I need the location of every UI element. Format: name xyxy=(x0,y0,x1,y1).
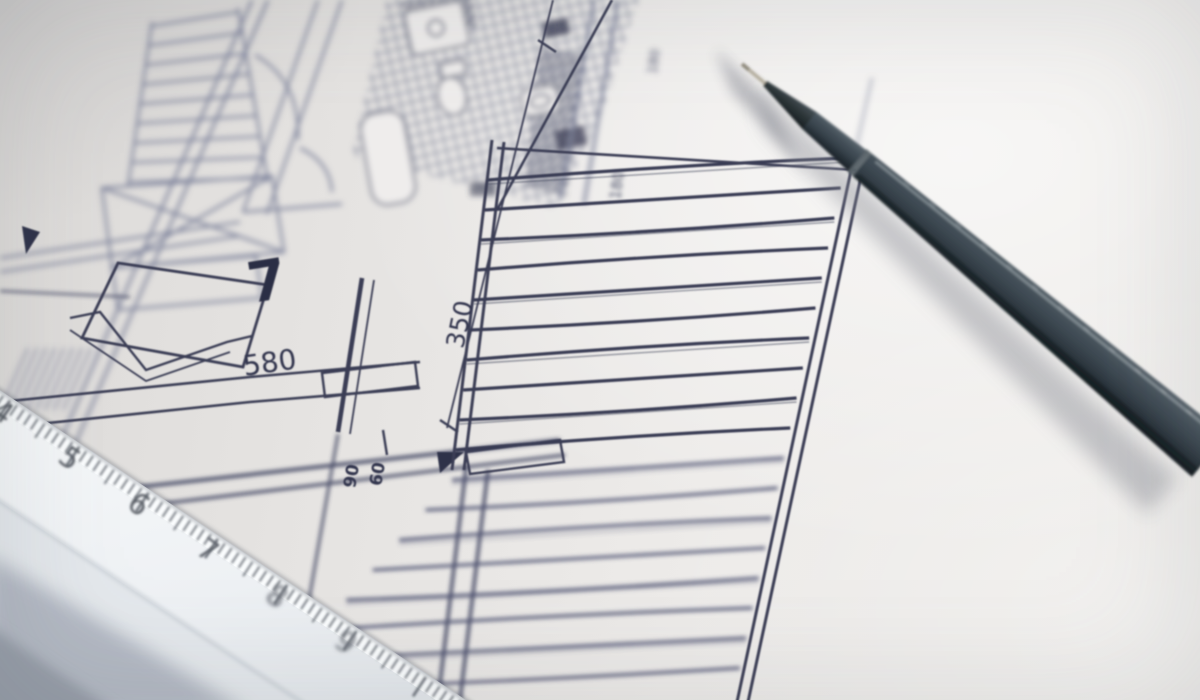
deck-hatching-upper xyxy=(456,158,847,450)
dim-180-top-label: 180 xyxy=(645,48,663,75)
blueprint-photo-scene: 180 180 xyxy=(0,0,1200,700)
dim-180-mid-label: 180 xyxy=(606,170,628,201)
dim-60-label: 60 xyxy=(366,461,390,488)
dim-90-label: 90 xyxy=(340,463,364,490)
dim-580-label: 580 xyxy=(241,343,299,383)
door-arc xyxy=(255,55,298,140)
door-arc xyxy=(300,148,332,192)
deck-right-edge xyxy=(737,166,862,700)
dim-350-label: 350 xyxy=(441,298,479,351)
ruler: 4 5 6 7 8 9 xyxy=(0,381,490,700)
bed xyxy=(82,263,268,367)
room-number-label: 7 xyxy=(243,247,292,317)
dimension-arrow xyxy=(22,226,40,254)
blurred-plan-region: 180 xyxy=(0,0,872,442)
floor-plan-sheet: 180 180 xyxy=(0,0,1200,700)
drafting-pen xyxy=(725,43,1200,476)
